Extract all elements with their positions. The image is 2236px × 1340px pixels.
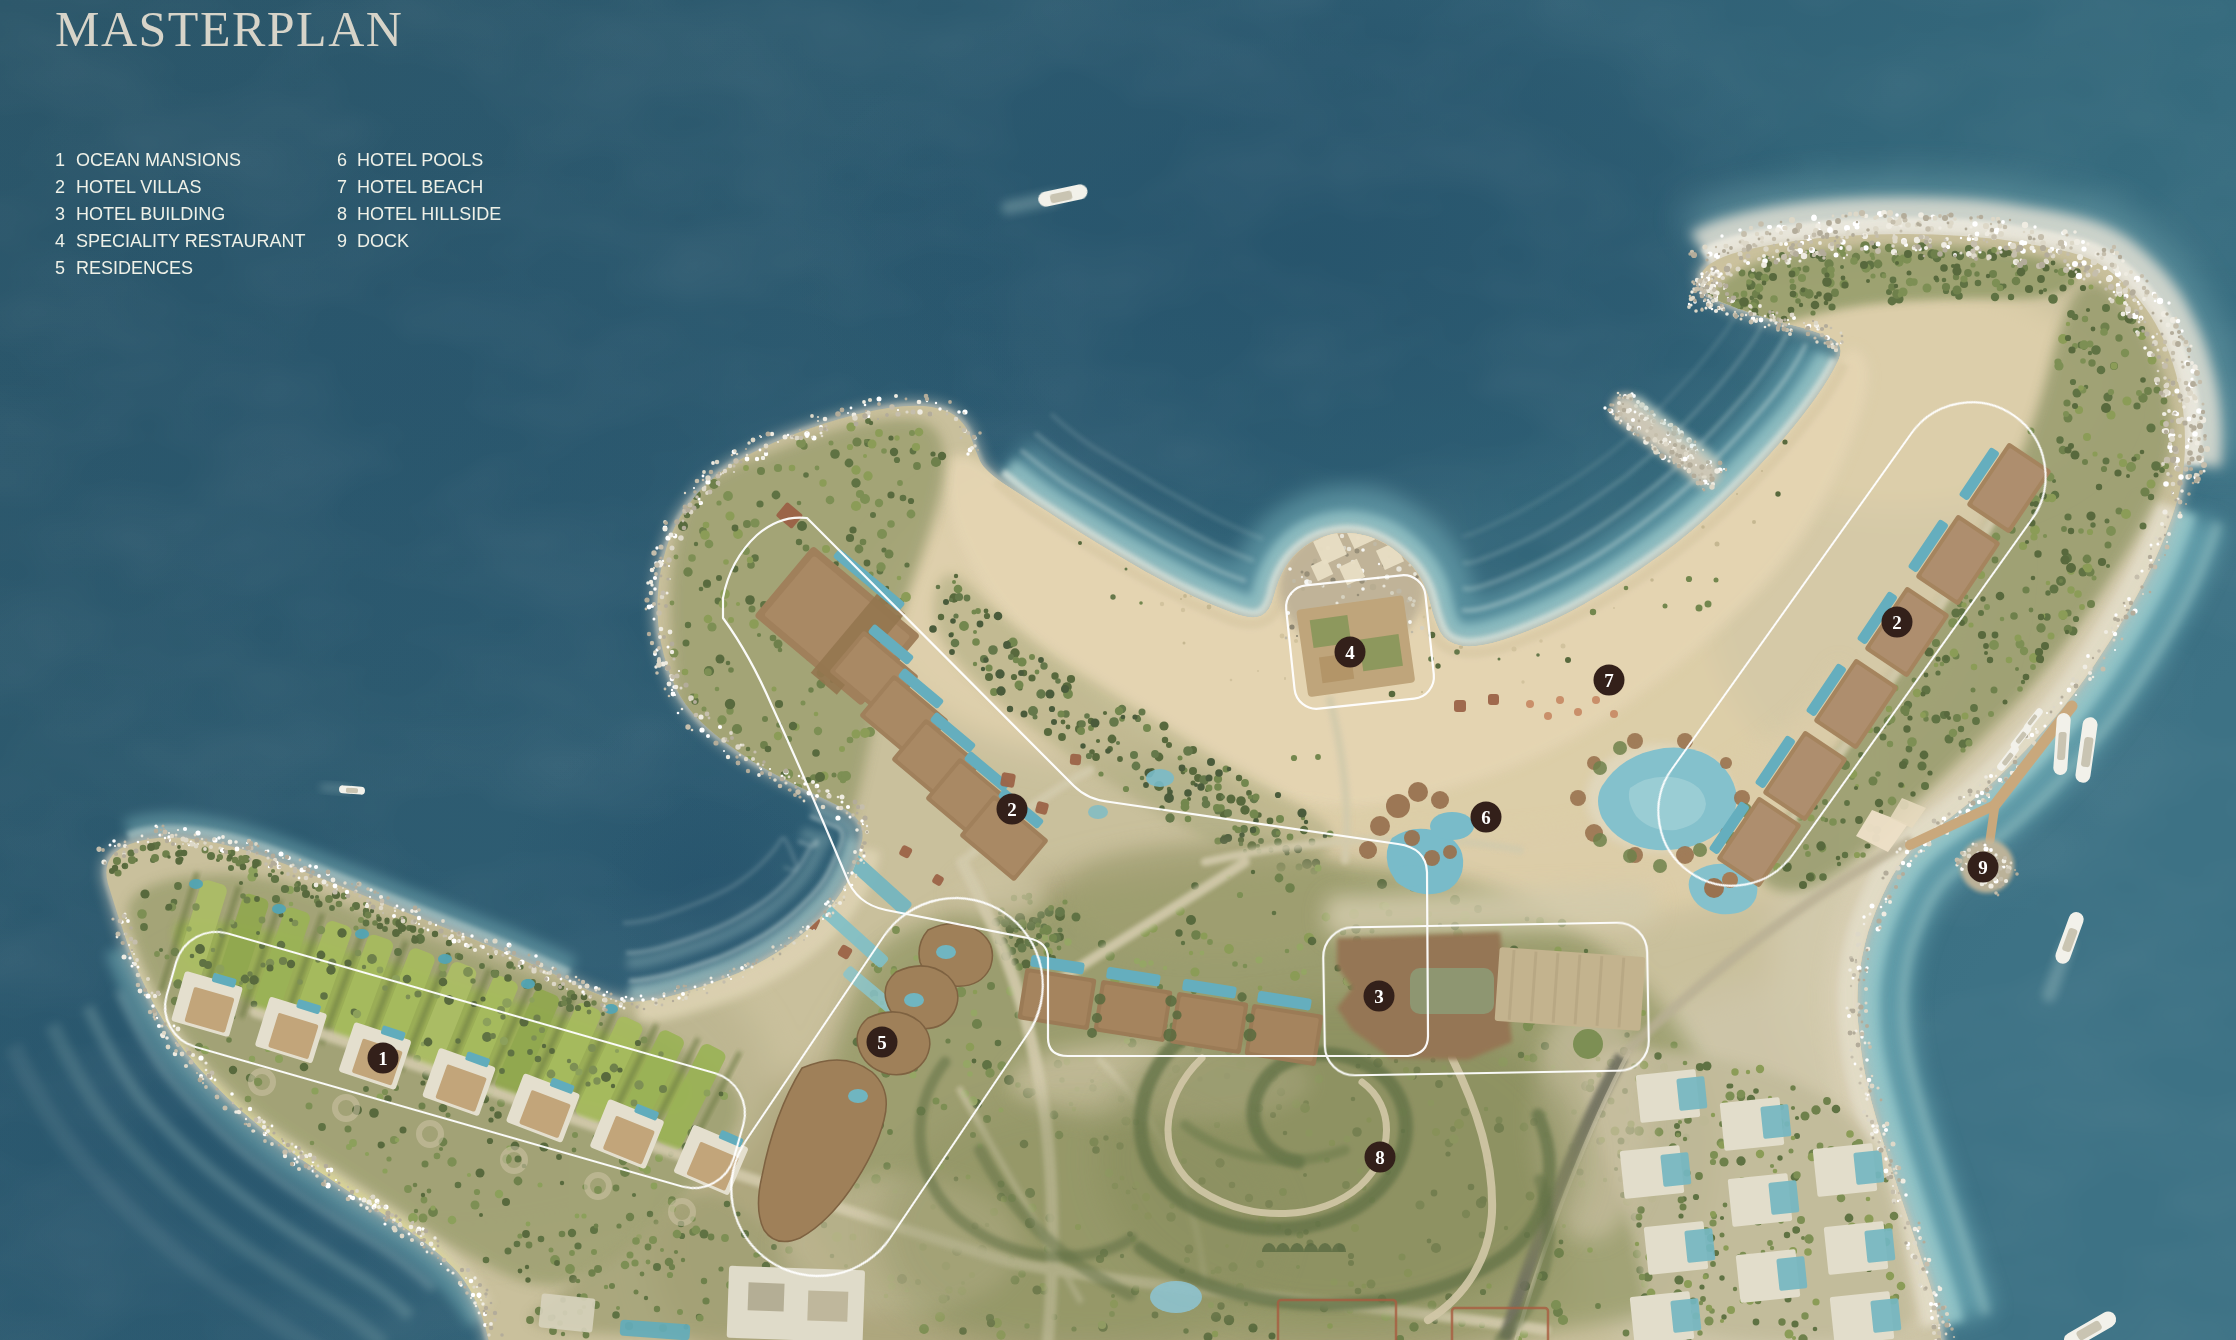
- svg-text:3: 3: [1374, 986, 1384, 1007]
- svg-text:7: 7: [1604, 670, 1614, 691]
- svg-text:RESIDENCES: RESIDENCES: [76, 258, 193, 278]
- svg-text:HOTEL BUILDING: HOTEL BUILDING: [76, 204, 225, 224]
- svg-text:9: 9: [1978, 857, 1988, 878]
- svg-text:7: 7: [337, 177, 347, 197]
- svg-text:9: 9: [337, 231, 347, 251]
- svg-text:5: 5: [877, 1032, 887, 1053]
- svg-text:8: 8: [1375, 1147, 1385, 1168]
- svg-text:2: 2: [1892, 612, 1902, 633]
- svg-text:3: 3: [55, 204, 65, 224]
- svg-text:6: 6: [337, 150, 347, 170]
- svg-text:4: 4: [55, 231, 65, 251]
- svg-text:2: 2: [55, 177, 65, 197]
- svg-text:8: 8: [337, 204, 347, 224]
- svg-text:OCEAN MANSIONS: OCEAN MANSIONS: [76, 150, 241, 170]
- svg-text:2: 2: [1007, 799, 1017, 820]
- svg-text:1: 1: [378, 1048, 388, 1069]
- svg-text:6: 6: [1481, 807, 1491, 828]
- svg-text:HOTEL POOLS: HOTEL POOLS: [357, 150, 483, 170]
- svg-text:4: 4: [1345, 642, 1355, 663]
- svg-text:5: 5: [55, 258, 65, 278]
- svg-text:SPECIALITY RESTAURANT: SPECIALITY RESTAURANT: [76, 231, 305, 251]
- svg-text:HOTEL VILLAS: HOTEL VILLAS: [76, 177, 201, 197]
- svg-text:HOTEL BEACH: HOTEL BEACH: [357, 177, 483, 197]
- svg-text:1: 1: [55, 150, 65, 170]
- svg-text:DOCK: DOCK: [357, 231, 409, 251]
- svg-text:HOTEL HILLSIDE: HOTEL HILLSIDE: [357, 204, 501, 224]
- svg-text:MASTERPLAN: MASTERPLAN: [55, 1, 403, 57]
